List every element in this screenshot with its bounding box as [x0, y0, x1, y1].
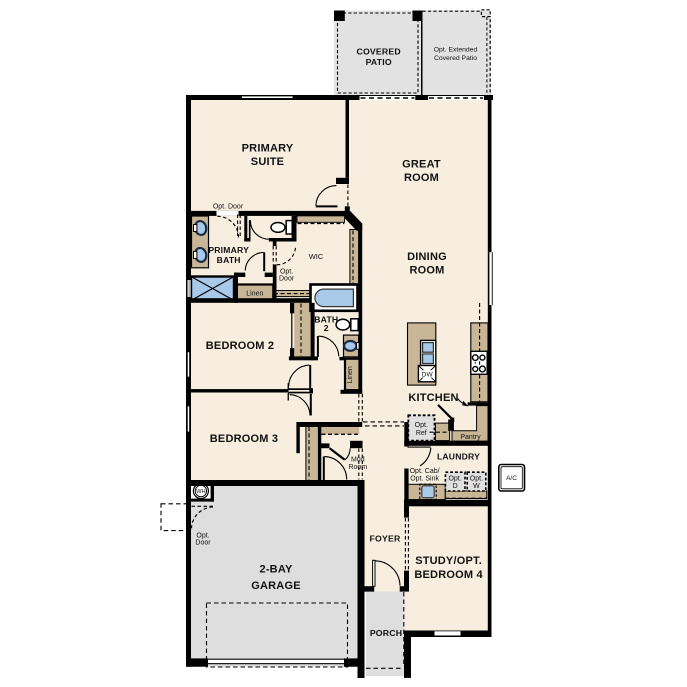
svg-text:Linen: Linen — [246, 291, 263, 298]
svg-text:Opt.: Opt. — [415, 422, 428, 429]
svg-text:WH: WH — [196, 489, 205, 495]
svg-text:PORCH: PORCH — [370, 628, 402, 638]
svg-text:Opt.: Opt. — [470, 476, 483, 483]
svg-text:Covered Patio: Covered Patio — [434, 55, 477, 62]
svg-text:Opt. Cab/: Opt. Cab/ — [410, 468, 440, 475]
svg-text:Door: Door — [195, 539, 211, 546]
svg-text:Linen: Linen — [347, 366, 354, 383]
svg-text:ROOM: ROOM — [409, 265, 444, 277]
svg-text:Ref: Ref — [416, 430, 427, 437]
svg-text:2: 2 — [324, 323, 329, 333]
svg-text:DINING: DINING — [407, 251, 447, 263]
svg-text:LAUNDRY: LAUNDRY — [437, 452, 480, 462]
svg-text:ROOM: ROOM — [404, 172, 439, 184]
svg-text:PATIO: PATIO — [366, 57, 392, 67]
svg-text:Door: Door — [279, 275, 295, 282]
svg-text:Opt. Sink: Opt. Sink — [410, 475, 439, 482]
svg-text:Opt.: Opt. — [448, 476, 461, 483]
svg-text:BEDROOM 4: BEDROOM 4 — [414, 569, 483, 581]
svg-text:SUITE: SUITE — [251, 156, 284, 168]
svg-text:Room: Room — [348, 464, 367, 471]
svg-text:D: D — [453, 483, 458, 490]
svg-text:STUDY/OPT.: STUDY/OPT. — [415, 555, 482, 567]
svg-text:Opt. Extended: Opt. Extended — [434, 47, 478, 54]
svg-text:WIC: WIC — [309, 252, 324, 261]
svg-text:COVERED: COVERED — [357, 47, 401, 57]
svg-text:Mud: Mud — [351, 457, 365, 464]
svg-text:PRIMARY: PRIMARY — [242, 143, 294, 155]
svg-text:FOYER: FOYER — [370, 534, 401, 544]
svg-text:PRIMARY: PRIMARY — [208, 245, 249, 255]
svg-text:GREAT: GREAT — [402, 159, 441, 171]
svg-text:W: W — [473, 483, 480, 490]
svg-text:2-BAY: 2-BAY — [260, 564, 293, 576]
svg-text:BATH: BATH — [217, 255, 241, 265]
svg-text:Pantry: Pantry — [460, 434, 481, 441]
svg-text:BEDROOM 3: BEDROOM 3 — [210, 433, 278, 445]
svg-text:DW: DW — [422, 371, 434, 378]
svg-text:A/C: A/C — [506, 475, 517, 482]
svg-text:KITCHEN: KITCHEN — [408, 392, 458, 404]
svg-text:Opt.: Opt. — [196, 532, 209, 539]
svg-text:GARAGE: GARAGE — [251, 580, 300, 592]
svg-text:Opt.: Opt. — [280, 268, 293, 275]
svg-text:BEDROOM 2: BEDROOM 2 — [206, 340, 274, 352]
svg-text:Opt. Door: Opt. Door — [213, 204, 244, 211]
